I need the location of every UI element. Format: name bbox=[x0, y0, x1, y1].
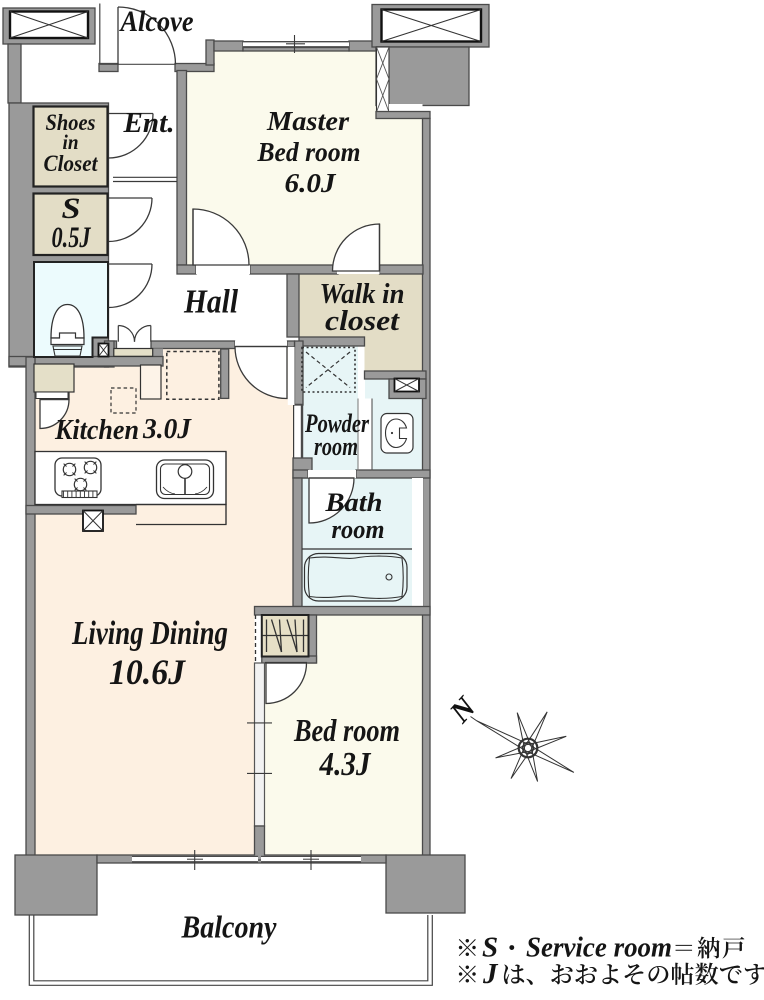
svg-text:6.0J: 6.0J bbox=[285, 168, 338, 198]
svg-text:Bed room: Bed room bbox=[257, 137, 361, 167]
svg-text:Service room: Service room bbox=[526, 932, 672, 964]
svg-text:Alcove: Alcove bbox=[119, 5, 194, 38]
svg-text:10.6J: 10.6J bbox=[109, 652, 186, 692]
svg-text:3.0J: 3.0J bbox=[142, 414, 192, 445]
svg-text:Living Dining: Living Dining bbox=[71, 615, 228, 652]
svg-text:Bath: Bath bbox=[324, 488, 382, 517]
svg-text:Master: Master bbox=[266, 106, 350, 136]
svg-text:Bed room: Bed room bbox=[293, 712, 400, 748]
svg-text:room: room bbox=[332, 515, 385, 544]
svg-text:0.5J: 0.5J bbox=[52, 221, 92, 254]
svg-text:room: room bbox=[314, 432, 358, 461]
svg-text:Ent.: Ent. bbox=[122, 108, 174, 139]
svg-text:4.3J: 4.3J bbox=[319, 746, 372, 783]
svg-text:J: J bbox=[482, 958, 499, 990]
svg-text:Closet: Closet bbox=[44, 151, 99, 176]
svg-text:Balcony: Balcony bbox=[181, 909, 278, 945]
svg-text:closet: closet bbox=[325, 306, 400, 337]
svg-text:Hall: Hall bbox=[183, 284, 238, 321]
svg-text:Kitchen: Kitchen bbox=[54, 414, 139, 446]
